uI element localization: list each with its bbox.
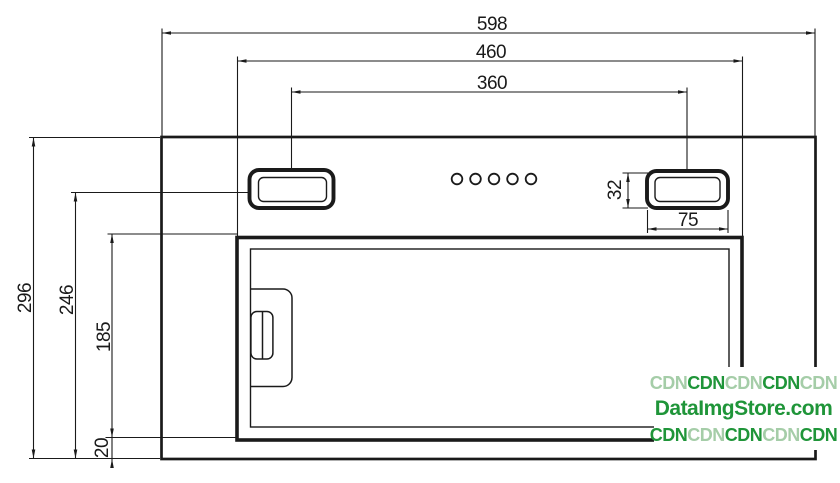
- control-button-5: [526, 174, 537, 185]
- control-button-row: [452, 174, 537, 185]
- watermark: CDNCDNCDNCDNCDN DataImgStore.com CDNCDNC…: [654, 367, 833, 450]
- watermark-cdn-segment: CDN: [800, 425, 838, 445]
- control-button-3: [489, 174, 500, 185]
- dimension-360: 360: [292, 73, 688, 172]
- watermark-cdn-segment: CDN: [762, 425, 800, 445]
- watermark-cdn-segment: CDN: [650, 373, 688, 393]
- watermark-line3: CDNCDNCDNCDNCDN: [650, 422, 838, 448]
- dim-label-185: 185: [94, 322, 115, 352]
- dim-label-460: 460: [476, 42, 506, 63]
- dimension-75: 75: [648, 210, 729, 233]
- watermark-cdn-segment: CDN: [650, 425, 688, 445]
- dim-label-360: 360: [477, 73, 507, 94]
- dim-label-20: 20: [92, 438, 113, 458]
- watermark-cdn-segment: CDN: [762, 373, 800, 393]
- watermark-cdn-segment: CDN: [687, 373, 725, 393]
- watermark-line1: CDNCDNCDNCDNCDN: [650, 370, 838, 396]
- dim-label-75: 75: [678, 210, 698, 231]
- control-button-4: [507, 174, 518, 185]
- dimension-20: 20: [92, 438, 114, 469]
- mounting-slot-left: [250, 170, 334, 208]
- watermark-cdn-segment: CDN: [725, 425, 763, 445]
- dim-label-598: 598: [477, 14, 507, 35]
- dim-label-246: 246: [57, 285, 78, 315]
- mounting-slot-right: [647, 171, 728, 208]
- dimension-296: 296: [15, 138, 160, 459]
- watermark-cdn-segment: CDN: [687, 425, 725, 445]
- watermark-site-text: DataImgStore.com: [655, 396, 833, 422]
- filter-latch: [251, 289, 293, 387]
- watermark-cdn-segment: CDN: [800, 373, 838, 393]
- dim-label-296: 296: [15, 283, 36, 313]
- dim-label-32: 32: [605, 180, 626, 200]
- dimension-32: 32: [605, 173, 648, 208]
- control-button-2: [470, 174, 481, 185]
- dimension-246: 246: [57, 193, 250, 459]
- watermark-cdn-segment: CDN: [725, 373, 763, 393]
- hood-dimension-drawing: 598 460 360 296: [0, 0, 840, 483]
- dimension-185: 185: [94, 234, 237, 438]
- control-button-1: [452, 174, 463, 185]
